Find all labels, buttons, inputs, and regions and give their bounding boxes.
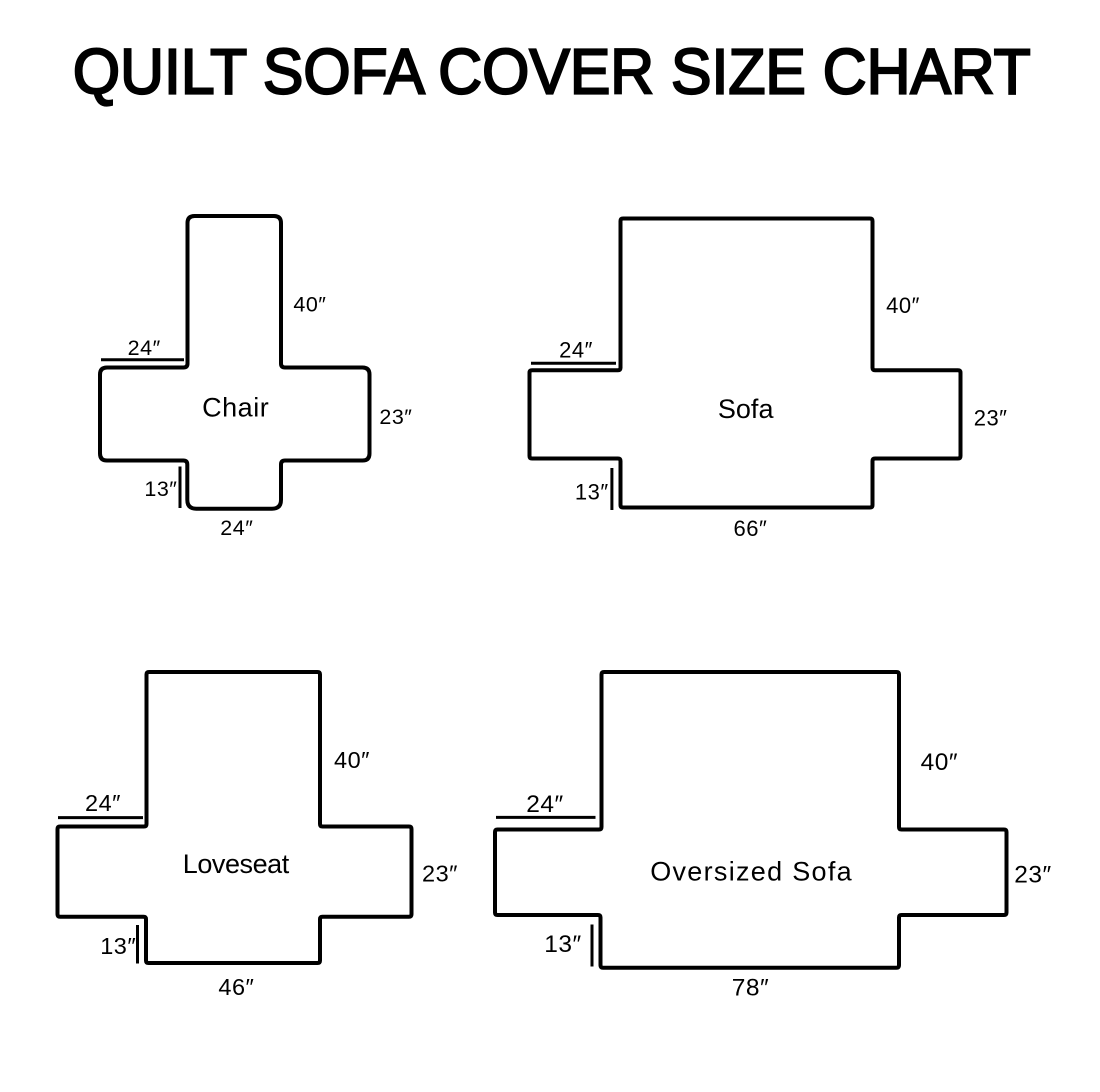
svg-text:24″: 24″ bbox=[559, 338, 593, 363]
svg-text:24″: 24″ bbox=[526, 791, 563, 818]
svg-text:46″: 46″ bbox=[218, 974, 254, 1000]
svg-text:78″: 78″ bbox=[732, 975, 769, 1002]
svg-text:24″: 24″ bbox=[85, 790, 121, 816]
svg-text:23″: 23″ bbox=[1014, 862, 1051, 889]
svg-text:23″: 23″ bbox=[422, 861, 458, 887]
svg-text:13″: 13″ bbox=[544, 931, 581, 958]
svg-text:13″: 13″ bbox=[100, 933, 136, 959]
svg-text:66″: 66″ bbox=[734, 516, 768, 541]
svg-text:Loveseat: Loveseat bbox=[183, 849, 290, 879]
svg-text:40″: 40″ bbox=[886, 293, 920, 318]
svg-text:Chair: Chair bbox=[202, 392, 269, 422]
svg-text:QUILT SOFA COVER SIZE CHART: QUILT SOFA COVER SIZE CHART bbox=[73, 37, 1031, 108]
svg-text:40″: 40″ bbox=[293, 293, 326, 317]
svg-text:40″: 40″ bbox=[921, 749, 958, 776]
svg-text:23″: 23″ bbox=[379, 405, 412, 429]
svg-text:40″: 40″ bbox=[334, 747, 370, 773]
svg-text:Oversized Sofa: Oversized Sofa bbox=[650, 857, 853, 887]
svg-text:23″: 23″ bbox=[974, 406, 1008, 431]
svg-text:13″: 13″ bbox=[575, 480, 609, 505]
svg-text:24″: 24″ bbox=[128, 336, 161, 360]
svg-text:24″: 24″ bbox=[220, 516, 253, 540]
svg-text:13″: 13″ bbox=[144, 477, 177, 501]
svg-text:Sofa: Sofa bbox=[718, 394, 775, 424]
